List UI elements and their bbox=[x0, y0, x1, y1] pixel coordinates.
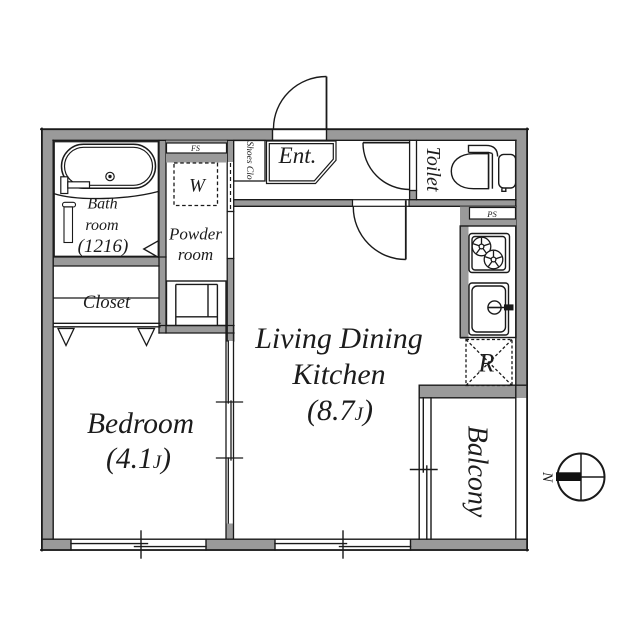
svg-text:Closet: Closet bbox=[83, 293, 131, 313]
svg-text:Living Dining: Living Dining bbox=[254, 322, 423, 355]
svg-text:Bath: Bath bbox=[87, 196, 117, 213]
svg-text:(8.7J): (8.7J) bbox=[307, 394, 373, 427]
svg-text:Balcony: Balcony bbox=[462, 426, 493, 518]
svg-text:W: W bbox=[189, 176, 207, 197]
svg-text:Ent.: Ent. bbox=[278, 143, 317, 168]
svg-text:Shoes Clo: Shoes Clo bbox=[244, 141, 254, 180]
svg-text:R: R bbox=[478, 349, 495, 378]
svg-text:PS: PS bbox=[486, 209, 497, 219]
svg-text:room: room bbox=[85, 217, 118, 234]
svg-text:FS: FS bbox=[190, 144, 200, 153]
svg-text:Bedroom: Bedroom bbox=[87, 408, 194, 440]
svg-text:Powder: Powder bbox=[168, 225, 222, 244]
svg-text:Toilet: Toilet bbox=[422, 147, 444, 192]
svg-text:(4.1J): (4.1J) bbox=[106, 443, 171, 475]
svg-text:N: N bbox=[539, 471, 555, 483]
svg-text:room: room bbox=[178, 245, 213, 264]
svg-text:Kitchen: Kitchen bbox=[291, 358, 385, 391]
svg-text:(1216): (1216) bbox=[78, 236, 129, 257]
